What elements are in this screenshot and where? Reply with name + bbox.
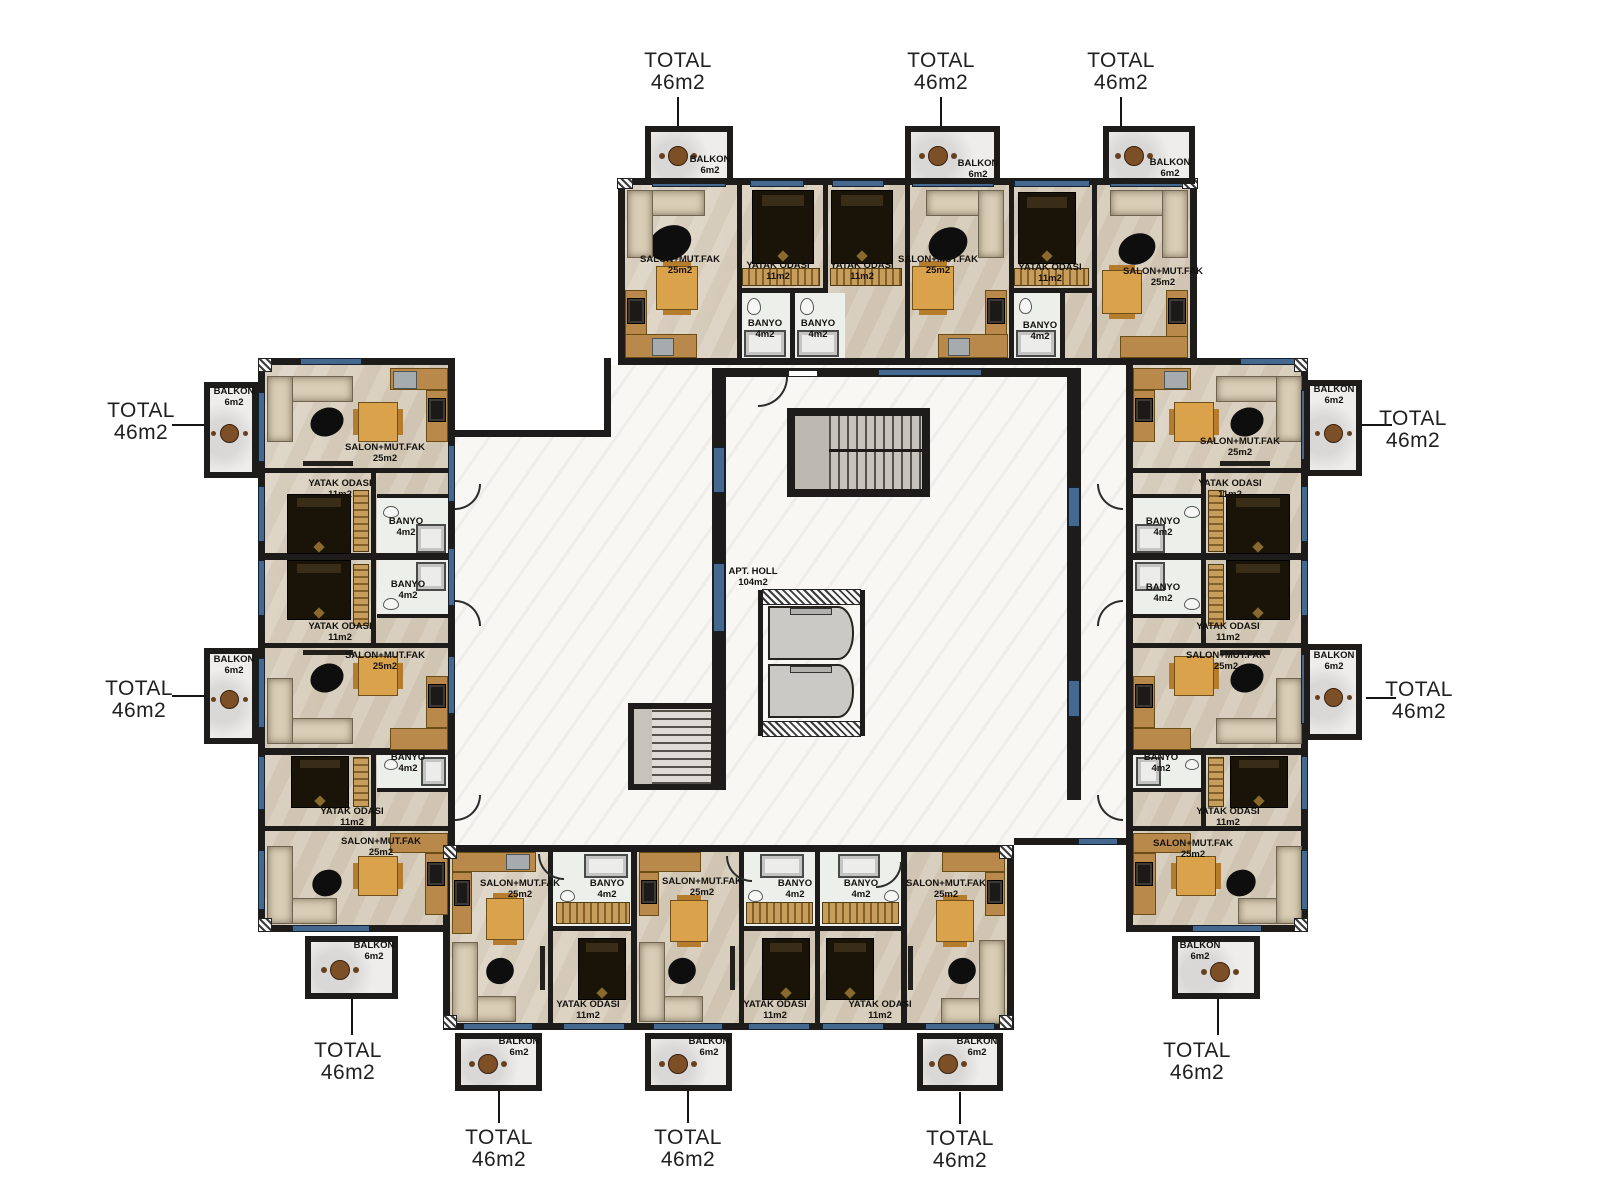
window-strip <box>1014 180 1090 187</box>
wall-hatch <box>1295 919 1307 931</box>
wall <box>1133 553 1301 560</box>
total-label: TOTAL46m2 <box>1385 679 1453 723</box>
bed-icon <box>762 938 810 1000</box>
bathroom-label: BANYO4m2 <box>1146 516 1180 538</box>
stove-icon <box>428 398 446 422</box>
room-name: SALON+MUT.FAK <box>662 876 742 887</box>
shower-icon <box>838 854 880 878</box>
room-name: BANYO <box>778 878 812 889</box>
wall <box>1092 185 1097 358</box>
room-name: BANYO <box>590 878 624 889</box>
tv-console-icon <box>540 946 545 990</box>
room-area: 4m2 <box>391 590 425 601</box>
wall <box>631 852 637 1023</box>
wall <box>820 926 901 931</box>
bedroom-label: YATAK ODASI11m2 <box>1196 621 1259 643</box>
total-area: 46m2 <box>907 72 975 94</box>
room-name: BALKON <box>1314 650 1355 661</box>
room-name: BANYO <box>391 752 425 763</box>
room-area: 11m2 <box>308 632 371 643</box>
fridge-icon <box>948 338 970 356</box>
bathroom-label: BANYO4m2 <box>1144 752 1178 774</box>
living-room-label: SALON+MUT.FAK25m2 <box>1186 650 1266 672</box>
fridge-icon <box>506 854 530 870</box>
room-name: SALON+MUT.FAK <box>341 836 421 847</box>
wardrobe-icon <box>1208 564 1224 626</box>
bed-icon <box>287 494 351 554</box>
balcony-label: BALKON6m2 <box>1314 650 1355 672</box>
wall-hatch <box>1000 1016 1012 1028</box>
room-name: BALKON <box>957 1036 998 1047</box>
wall <box>377 788 448 792</box>
room-area: 25m2 <box>1153 849 1233 860</box>
sofa-icon <box>267 678 293 744</box>
total-label: TOTAL46m2 <box>907 50 975 94</box>
toilet-icon <box>1019 298 1032 314</box>
wall-hatch <box>444 846 456 858</box>
bathroom-label: BANYO4m2 <box>389 516 423 538</box>
total-title: TOTAL <box>1163 1040 1231 1062</box>
total-title: TOTAL <box>1087 50 1155 72</box>
total-title: TOTAL <box>644 50 712 72</box>
room-area: 25m2 <box>906 889 986 900</box>
room-area: 25m2 <box>345 453 425 464</box>
total-label: TOTAL46m2 <box>644 50 712 94</box>
window-strip <box>1301 560 1308 616</box>
window-strip <box>448 548 455 606</box>
room-area: 11m2 <box>1198 489 1261 500</box>
balcony-table-icon <box>1324 424 1343 443</box>
stove-icon <box>1168 298 1186 324</box>
sofa-icon <box>452 942 478 1022</box>
shower-icon <box>584 854 628 878</box>
leader-line <box>1120 97 1122 126</box>
total-label: TOTAL46m2 <box>1087 50 1155 94</box>
room-name: BANYO <box>389 516 423 527</box>
total-label: TOTAL46m2 <box>465 1127 533 1171</box>
room-name: BALKON <box>1150 157 1191 168</box>
dining-table-icon <box>486 898 524 940</box>
wall <box>553 926 631 931</box>
room-name: BALKON <box>958 158 999 169</box>
room-area: 25m2 <box>640 265 720 276</box>
window-strip <box>448 445 455 502</box>
toilet-icon <box>748 890 763 902</box>
living-room-label: SALON+MUT.FAK25m2 <box>480 878 560 900</box>
balcony-table-icon <box>668 1054 688 1074</box>
stove-icon <box>627 298 645 324</box>
wall <box>604 358 611 437</box>
bed-icon <box>578 938 626 1000</box>
sofa-icon <box>979 940 1005 1024</box>
bedroom-label: YATAK ODASI11m2 <box>743 999 806 1021</box>
bathroom-label: BANYO4m2 <box>1023 320 1057 342</box>
balcony-table-icon <box>938 1054 958 1074</box>
kitchen-counter-icon <box>639 852 701 872</box>
wall <box>265 553 448 560</box>
bedroom-label: YATAK ODASI11m2 <box>1196 806 1259 828</box>
sofa-icon <box>639 942 665 1022</box>
room-area: 25m2 <box>898 265 978 276</box>
room-area: 25m2 <box>345 661 425 672</box>
room-area: 6m2 <box>499 1047 540 1058</box>
room-area: 6m2 <box>354 951 395 962</box>
wall-hatch <box>259 359 271 371</box>
room-name: APT. HOLL <box>728 566 777 577</box>
living-room-label: SALON+MUT.FAK25m2 <box>1123 266 1203 288</box>
total-title: TOTAL <box>1379 408 1447 430</box>
total-label: TOTAL46m2 <box>926 1128 994 1172</box>
bed-icon <box>826 938 874 1000</box>
sofa-icon <box>978 190 1004 258</box>
room-area: 11m2 <box>556 1010 619 1021</box>
balcony-door-window <box>258 658 265 728</box>
room-name: BALKON <box>1314 384 1355 395</box>
room-area: 6m2 <box>1314 395 1355 406</box>
wall-hatch <box>444 1016 456 1028</box>
dining-table-icon <box>358 856 398 896</box>
total-label: TOTAL46m2 <box>1163 1040 1231 1084</box>
bedroom-label: YATAK ODASI11m2 <box>746 260 809 282</box>
toilet-icon <box>560 890 575 902</box>
leader-line <box>687 1091 689 1123</box>
sofa-icon <box>1162 190 1188 258</box>
room-area: 6m2 <box>689 1047 730 1058</box>
wall <box>758 590 763 736</box>
wall-hatch <box>618 179 632 188</box>
balcony-table-icon <box>1124 146 1144 166</box>
room-name: BANYO <box>801 318 835 329</box>
room-name: BANYO <box>1023 320 1057 331</box>
room-name: SALON+MUT.FAK <box>1123 266 1203 277</box>
room-area: 25m2 <box>662 887 742 898</box>
bathroom-label: BANYO4m2 <box>590 878 624 900</box>
room-name: SALON+MUT.FAK <box>345 442 425 453</box>
elevator-door-icon <box>790 666 832 673</box>
balcony-table-icon <box>330 960 350 980</box>
room-name: SALON+MUT.FAK <box>906 878 986 889</box>
room-name: SALON+MUT.FAK <box>480 878 560 889</box>
door-leaf-icon <box>788 370 818 377</box>
stair-treads <box>829 416 922 449</box>
window-strip <box>1301 850 1308 910</box>
room-name: BALKON <box>214 386 255 397</box>
tv-console-icon <box>908 946 913 990</box>
kitchen-counter-icon <box>390 728 448 750</box>
total-title: TOTAL <box>907 50 975 72</box>
balcony-table-icon <box>928 146 948 166</box>
room-area: 11m2 <box>1018 273 1081 284</box>
room-name: YATAK ODASI <box>1196 806 1259 817</box>
wardrobe-icon <box>353 564 369 626</box>
dining-table-icon <box>358 402 398 442</box>
sofa-icon <box>1276 678 1302 744</box>
room-name: YATAK ODASI <box>1196 621 1259 632</box>
room-area: 4m2 <box>590 889 624 900</box>
balcony-table-icon <box>668 146 688 166</box>
room-area: 104m2 <box>728 577 777 588</box>
wall <box>1133 468 1301 473</box>
fridge-icon <box>652 338 674 356</box>
total-area: 46m2 <box>1163 1062 1231 1084</box>
living-room-label: SALON+MUT.FAK25m2 <box>341 836 421 858</box>
kitchen-counter-icon <box>1120 336 1188 358</box>
stove-icon <box>987 298 1005 324</box>
room-area: 6m2 <box>958 169 999 180</box>
leader-line <box>172 695 204 697</box>
bedroom-label: YATAK ODASI11m2 <box>320 806 383 828</box>
window-strip <box>1301 486 1308 542</box>
room-name: SALON+MUT.FAK <box>1200 436 1280 447</box>
toilet-icon <box>800 298 814 315</box>
leader-line <box>351 999 353 1035</box>
bedroom-label: YATAK ODASI11m2 <box>556 999 619 1021</box>
wall <box>371 560 376 643</box>
total-area: 46m2 <box>654 1149 722 1171</box>
room-area: 11m2 <box>743 1010 806 1021</box>
wall <box>744 926 815 931</box>
total-label: TOTAL46m2 <box>314 1040 382 1084</box>
room-name: YATAK ODASI <box>320 806 383 817</box>
bed-icon <box>291 756 349 808</box>
living-room-label: SALON+MUT.FAK25m2 <box>345 650 425 672</box>
wall <box>1133 643 1301 648</box>
stove-icon <box>1135 398 1153 422</box>
balcony-label: BALKON6m2 <box>1180 940 1221 962</box>
wall <box>1133 494 1201 498</box>
room-name: SALON+MUT.FAK <box>345 650 425 661</box>
room-name: SALON+MUT.FAK <box>640 254 720 265</box>
living-room-label: SALON+MUT.FAK25m2 <box>898 254 978 276</box>
window-strip <box>748 1023 810 1030</box>
bedroom-label: YATAK ODASI11m2 <box>308 621 371 643</box>
room-area: 25m2 <box>480 889 560 900</box>
sofa-icon <box>1276 846 1302 924</box>
living-room-label: SALON+MUT.FAK25m2 <box>1153 838 1233 860</box>
room-name: BALKON <box>354 940 395 951</box>
room-name: YATAK ODASI <box>1018 262 1081 273</box>
room-name: BALKON <box>499 1036 540 1047</box>
room-name: YATAK ODASI <box>848 999 911 1010</box>
stair-rail <box>829 449 922 452</box>
room-name: YATAK ODASI <box>556 999 619 1010</box>
balcony-table-icon <box>220 424 239 443</box>
total-label: TOTAL46m2 <box>1379 408 1447 452</box>
wall-hatch <box>259 919 271 931</box>
floor-plan-canvas: SALON+MUT.FAK25m2 SALON+MUT.FAK25m2 SALO… <box>0 0 1600 1200</box>
wardrobe-icon <box>822 902 899 924</box>
bathroom-label: BANYO4m2 <box>1146 582 1180 604</box>
window-strip <box>713 563 725 632</box>
balcony-door-window <box>292 925 370 932</box>
room-area: 6m2 <box>1314 661 1355 672</box>
leader-line <box>172 424 204 426</box>
room-area: 6m2 <box>690 165 731 176</box>
living-room-label: SALON+MUT.FAK25m2 <box>345 442 425 464</box>
toilet-icon <box>747 298 761 315</box>
kitchen-counter-icon <box>942 852 1005 872</box>
balcony-label: BALKON6m2 <box>1150 157 1191 179</box>
room-name: YATAK ODASI <box>743 999 806 1010</box>
leader-line <box>677 97 679 126</box>
wardrobe-icon <box>746 902 813 924</box>
room-name: YATAK ODASI <box>746 260 809 271</box>
bed-icon <box>831 190 893 264</box>
room-area: 11m2 <box>830 271 893 282</box>
balcony-table-icon <box>1210 962 1230 982</box>
balcony-label: BALKON6m2 <box>957 1036 998 1058</box>
room-name: SALON+MUT.FAK <box>1186 650 1266 661</box>
stove-icon <box>427 862 445 886</box>
room-area: 25m2 <box>1200 447 1280 458</box>
room-area: 11m2 <box>746 271 809 282</box>
total-area: 46m2 <box>644 72 712 94</box>
bathroom-label: BANYO4m2 <box>801 318 835 340</box>
window-strip <box>258 560 265 616</box>
hall-label: APT. HOLL104m2 <box>728 566 777 588</box>
stove-icon <box>1135 684 1153 708</box>
total-area: 46m2 <box>926 1150 994 1172</box>
room-name: YATAK ODASI <box>1198 478 1261 489</box>
room-name: YATAK ODASI <box>308 621 371 632</box>
room-area: 6m2 <box>1150 168 1191 179</box>
balcony-door-window <box>653 1023 723 1030</box>
dining-table-icon <box>670 900 708 942</box>
room-area: 25m2 <box>1186 661 1266 672</box>
living-room-label: SALON+MUT.FAK25m2 <box>640 254 720 276</box>
leader-line <box>940 97 942 126</box>
room-area: 4m2 <box>778 889 812 900</box>
window-strip <box>300 358 362 365</box>
wall <box>371 473 376 553</box>
sofa-icon <box>1276 376 1302 442</box>
stove-icon <box>1135 862 1153 886</box>
window-strip <box>258 850 265 910</box>
room-area: 6m2 <box>957 1047 998 1058</box>
toilet-icon <box>884 890 899 902</box>
room-area: 11m2 <box>1196 817 1259 828</box>
window-strip <box>258 756 265 810</box>
fridge-icon <box>393 371 417 389</box>
room-name: YATAK ODASI <box>830 260 893 271</box>
bedroom-label: YATAK ODASI11m2 <box>1018 262 1081 284</box>
room-name: BANYO <box>1144 752 1178 763</box>
wall <box>1060 293 1065 358</box>
balcony-label: BALKON6m2 <box>689 1036 730 1058</box>
window-strip <box>1068 487 1080 527</box>
toilet-icon <box>1184 598 1200 610</box>
total-label: TOTAL46m2 <box>105 678 173 722</box>
window-strip <box>822 1023 884 1030</box>
total-title: TOTAL <box>314 1040 382 1062</box>
room-name: BANYO <box>1146 516 1180 527</box>
room-name: BALKON <box>689 1036 730 1047</box>
bathroom-label: BANYO4m2 <box>844 878 878 900</box>
window-strip <box>1240 358 1300 365</box>
dining-table-icon <box>1176 856 1216 896</box>
room-area: 4m2 <box>844 889 878 900</box>
room-name: BALKON <box>214 654 255 665</box>
total-area: 46m2 <box>1385 701 1453 723</box>
room-area: 25m2 <box>1123 277 1203 288</box>
window-strip <box>878 369 982 376</box>
living-room-label: SALON+MUT.FAK25m2 <box>1200 436 1280 458</box>
room-area: 4m2 <box>801 329 835 340</box>
total-title: TOTAL <box>105 678 173 700</box>
total-area: 46m2 <box>1379 430 1447 452</box>
total-title: TOTAL <box>926 1128 994 1150</box>
bed-icon <box>1018 192 1076 264</box>
balcony-label: BALKON6m2 <box>214 386 255 408</box>
room-area: 6m2 <box>1180 951 1221 962</box>
room-area: 4m2 <box>391 763 425 774</box>
balcony-table-icon <box>220 690 239 709</box>
wall <box>265 643 448 648</box>
window-strip <box>1068 680 1080 717</box>
wall <box>1133 614 1201 618</box>
sofa-icon <box>267 376 293 442</box>
room-name: BANYO <box>1146 582 1180 593</box>
apartment-block-bottom <box>443 845 1014 1030</box>
sofa-icon <box>267 846 293 924</box>
wall-hatch <box>763 722 860 736</box>
total-label: TOTAL46m2 <box>654 1127 722 1171</box>
balcony-label: BALKON6m2 <box>354 940 395 962</box>
total-title: TOTAL <box>654 1127 722 1149</box>
room-area: 4m2 <box>1023 331 1057 342</box>
wall <box>1067 377 1081 800</box>
bed-icon <box>1230 756 1288 808</box>
total-area: 46m2 <box>465 1149 533 1171</box>
stair-landing <box>795 416 829 489</box>
room-area: 4m2 <box>1146 593 1180 604</box>
room-area: 6m2 <box>214 397 255 408</box>
total-label: TOTAL46m2 <box>107 400 175 444</box>
tv-console-icon <box>730 946 735 990</box>
total-area: 46m2 <box>107 422 175 444</box>
room-area: 25m2 <box>341 847 421 858</box>
room-name: BANYO <box>844 878 878 889</box>
tv-console-icon <box>1220 461 1270 466</box>
window-strip <box>1301 756 1308 810</box>
wardrobe-icon <box>353 757 369 807</box>
wall <box>860 590 865 736</box>
balcony-label: BALKON6m2 <box>1314 384 1355 406</box>
sofa-icon <box>627 190 653 258</box>
dining-table-icon <box>936 900 974 942</box>
room-name: BALKON <box>690 154 731 165</box>
window-strip <box>832 180 884 187</box>
room-area: 4m2 <box>748 329 782 340</box>
balcony-table-icon <box>1324 688 1343 707</box>
stove-icon <box>641 880 657 904</box>
bed-icon <box>1226 560 1290 620</box>
room-name: SALON+MUT.FAK <box>898 254 978 265</box>
living-room-label: SALON+MUT.FAK25m2 <box>906 878 986 900</box>
room-name: BANYO <box>748 318 782 329</box>
room-name: BALKON <box>1180 940 1221 951</box>
stove-icon <box>987 880 1003 904</box>
stove-icon <box>428 684 446 708</box>
bed-icon <box>1226 494 1290 554</box>
window-strip <box>750 180 804 187</box>
balcony-label: BALKON6m2 <box>499 1036 540 1058</box>
room-area: 4m2 <box>1144 763 1178 774</box>
bed-icon <box>287 560 351 620</box>
bedroom-label: YATAK ODASI11m2 <box>1198 478 1261 500</box>
wall <box>377 614 448 618</box>
room-area: 4m2 <box>1146 527 1180 538</box>
